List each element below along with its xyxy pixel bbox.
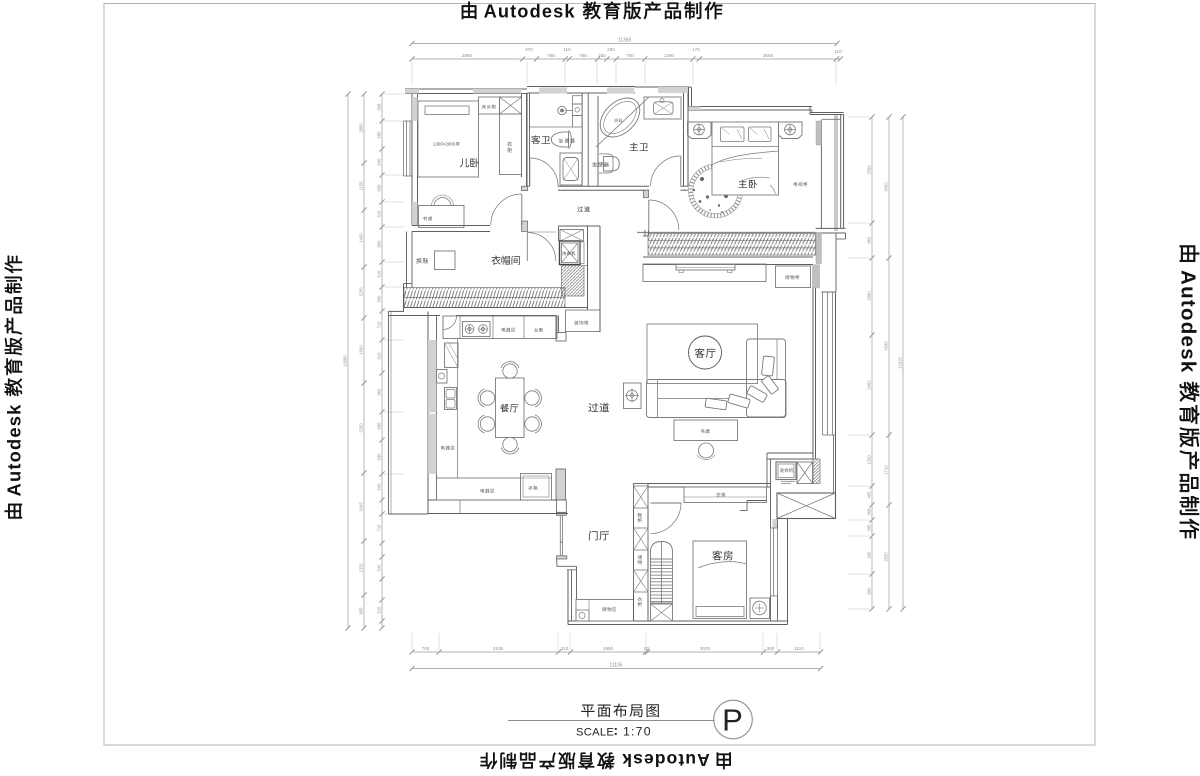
svg-text:640: 640: [377, 158, 382, 166]
svg-text:50: 50: [644, 646, 650, 651]
svg-text:310: 310: [561, 646, 569, 651]
svg-text:370: 370: [525, 47, 533, 52]
svg-text:1950: 1950: [603, 646, 614, 651]
svg-text:515: 515: [377, 606, 382, 614]
svg-text:685: 685: [377, 131, 382, 139]
svg-text:2860: 2860: [359, 123, 364, 133]
svg-text:1325: 1325: [359, 563, 364, 573]
svg-text:Autodesk: Autodesk: [484, 2, 576, 22]
svg-text:P: P: [722, 703, 743, 738]
svg-text:368: 368: [867, 508, 872, 516]
svg-text:110: 110: [563, 47, 571, 52]
svg-text:1250: 1250: [867, 455, 872, 465]
svg-text:1:70: 1:70: [623, 725, 652, 739]
svg-text:1290: 1290: [664, 53, 675, 58]
svg-text:250: 250: [598, 53, 606, 58]
svg-text:860: 860: [867, 587, 872, 595]
svg-text:668: 668: [377, 184, 382, 192]
svg-text:1710: 1710: [884, 465, 889, 475]
svg-text:11365: 11365: [618, 38, 632, 44]
svg-text:615: 615: [377, 210, 382, 218]
svg-text:710: 710: [377, 321, 382, 329]
svg-text:1150: 1150: [359, 181, 364, 191]
svg-text:110: 110: [834, 49, 842, 54]
svg-text:1890: 1890: [867, 291, 872, 301]
svg-text:SCALE: SCALE: [576, 727, 614, 739]
svg-text:13080: 13080: [343, 355, 348, 367]
svg-text:170: 170: [692, 47, 700, 52]
svg-text:2200: 2200: [359, 423, 364, 433]
svg-text:3450: 3450: [884, 182, 889, 192]
svg-text:390: 390: [867, 524, 872, 532]
svg-text:Autodesk: Autodesk: [4, 404, 25, 497]
svg-text:Autodesk: Autodesk: [1177, 270, 1200, 374]
svg-text:668: 668: [377, 103, 382, 111]
svg-text:615: 615: [377, 270, 382, 278]
svg-text:12020: 12020: [898, 357, 903, 369]
svg-text:810: 810: [377, 352, 382, 360]
svg-text:1300×2000: 1300×2000: [433, 142, 456, 147]
svg-text:835: 835: [377, 453, 382, 461]
svg-text:1110: 1110: [794, 646, 804, 651]
svg-text:860: 860: [867, 236, 872, 244]
svg-text:4330: 4330: [884, 341, 889, 351]
svg-text:800: 800: [359, 607, 364, 615]
svg-text:2550: 2550: [884, 552, 889, 562]
svg-text:685: 685: [377, 422, 382, 430]
svg-text:11105: 11105: [609, 663, 622, 669]
svg-text:3020: 3020: [700, 646, 711, 651]
svg-text:540: 540: [377, 564, 382, 572]
svg-text:860: 860: [377, 240, 382, 248]
svg-text:1600: 1600: [359, 345, 364, 355]
svg-text:700: 700: [422, 646, 430, 651]
svg-text:1665: 1665: [359, 502, 364, 512]
svg-text:765: 765: [547, 53, 555, 58]
svg-text:640: 640: [377, 483, 382, 491]
svg-text:960: 960: [377, 388, 382, 396]
svg-text:710: 710: [377, 524, 382, 532]
svg-text:2960: 2960: [462, 53, 473, 58]
svg-text:465: 465: [867, 491, 872, 499]
svg-text:1245: 1245: [359, 287, 364, 297]
svg-text:760: 760: [626, 53, 634, 58]
svg-text:2450: 2450: [867, 380, 872, 390]
svg-text:930: 930: [867, 551, 872, 559]
svg-text:2590: 2590: [867, 165, 872, 175]
svg-text:3105: 3105: [493, 646, 504, 651]
svg-text:360: 360: [767, 646, 775, 651]
svg-text:3665: 3665: [763, 53, 774, 58]
svg-text:590: 590: [377, 295, 382, 303]
svg-text:760: 760: [579, 53, 587, 58]
svg-text:250: 250: [607, 47, 615, 52]
svg-text:1400: 1400: [359, 233, 364, 243]
svg-text:Autodesk: Autodesk: [621, 750, 710, 770]
